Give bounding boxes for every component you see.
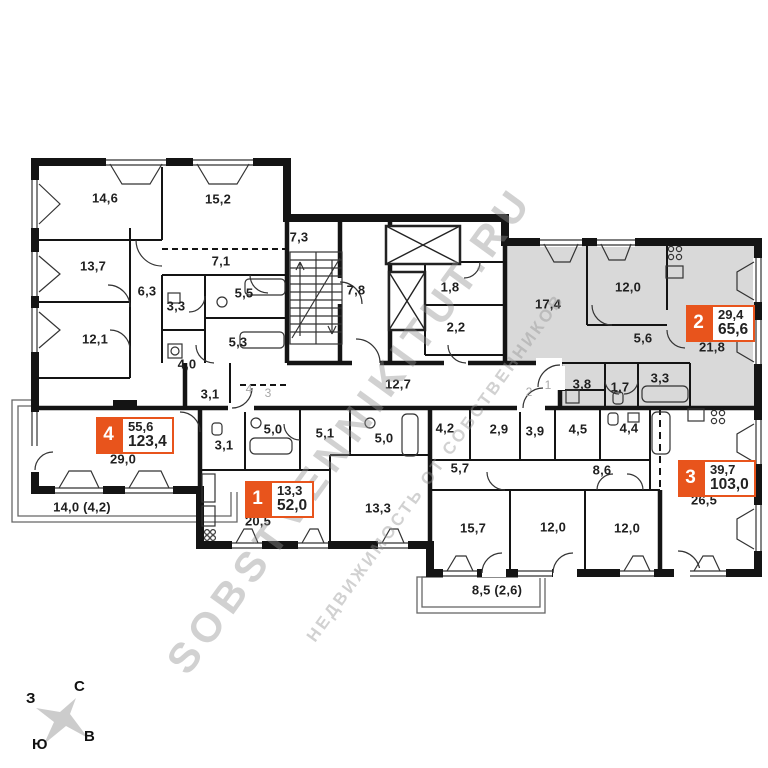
apartment-3-living-area: 39,7 xyxy=(710,463,749,477)
apartment-2-total-area: 65,6 xyxy=(718,322,748,339)
apartment-4-number: 4 xyxy=(96,417,121,454)
room-area-label: 2,2 xyxy=(447,320,466,335)
apartment-3-badge[interactable]: 3 39,7 103,0 xyxy=(678,460,756,497)
room-area-label: 12,7 xyxy=(385,377,411,392)
room-area-label: 13,7 xyxy=(80,259,106,274)
room-area-label: 12,0 xyxy=(614,521,640,536)
apartment-3-total-area: 103,0 xyxy=(710,477,749,494)
apartment-2-living-area: 29,4 xyxy=(718,308,748,322)
room-area-label: 13,3 xyxy=(365,501,391,516)
room-area-label: 4,2 xyxy=(436,421,455,436)
room-area-label: 7,1 xyxy=(212,254,231,269)
apartment-4-total-area: 123,4 xyxy=(128,434,167,451)
room-area-label: 15,2 xyxy=(205,192,231,207)
apartment-2-badge[interactable]: 2 29,4 65,6 xyxy=(686,305,755,342)
room-area-label: 3,3 xyxy=(167,299,186,314)
room-area-label: 12,0 xyxy=(615,280,641,295)
room-area-label: 17,4 xyxy=(535,297,561,312)
room-area-label: 12,0 xyxy=(540,520,566,535)
compass-west-label: З xyxy=(26,690,35,707)
room-area-label: 15,7 xyxy=(460,521,486,536)
room-area-label: 3,3 xyxy=(651,371,670,386)
room-area-label: 5,7 xyxy=(451,461,470,476)
apartment-door-number: 3 xyxy=(265,386,272,400)
room-area-label: 3,1 xyxy=(201,387,220,402)
room-area-label: 14,6 xyxy=(92,191,118,206)
room-area-label: 3,8 xyxy=(573,377,592,392)
room-area-label: 1,8 xyxy=(441,280,460,295)
apartment-door-number: 1 xyxy=(545,378,552,392)
compass-east-label: В xyxy=(84,728,95,745)
room-area-label: 7,8 xyxy=(347,283,366,298)
room-area-label: 3,1 xyxy=(215,438,234,453)
room-labels-layer: 14,615,213,77,16,33,35,512,15,34,03,129,… xyxy=(0,0,768,768)
room-area-label: 8,6 xyxy=(593,463,612,478)
compass-rose: С З Ю В xyxy=(14,676,114,764)
room-area-label: 5,1 xyxy=(316,426,335,441)
room-area-label: 5,0 xyxy=(375,431,394,446)
apartment-door-number: 2 xyxy=(526,385,533,399)
room-area-label: 4,4 xyxy=(620,421,639,436)
apartment-door-number: 4 xyxy=(246,382,253,396)
room-area-label: 2,9 xyxy=(490,422,509,437)
apartment-1-badge[interactable]: 1 13,3 52,0 xyxy=(245,481,314,518)
room-area-label: 4,5 xyxy=(569,422,588,437)
balcony-area-label: 14,0 (4,2) xyxy=(53,500,111,515)
room-area-label: 5,0 xyxy=(264,422,283,437)
room-area-label: 5,3 xyxy=(229,335,248,350)
apartment-3-number: 3 xyxy=(678,460,703,497)
balcony-area-label: 8,5 (2,6) xyxy=(472,583,522,598)
floor-plan-page: SOBSTVENNIKITUT.RU НЕДВИЖИМОСТЬ ОТ СОБСТ… xyxy=(0,0,768,768)
room-area-label: 4,0 xyxy=(178,357,197,372)
room-area-label: 12,1 xyxy=(82,332,108,347)
apartment-2-number: 2 xyxy=(686,305,711,342)
compass-north-label: С xyxy=(74,678,85,695)
room-area-label: 3,9 xyxy=(526,424,545,439)
apartment-1-total-area: 52,0 xyxy=(277,498,307,515)
room-area-label: 5,6 xyxy=(634,331,653,346)
apartment-4-badge[interactable]: 4 55,6 123,4 xyxy=(96,417,174,454)
room-area-label: 1,7 xyxy=(611,380,630,395)
apartment-4-living-area: 55,6 xyxy=(128,420,167,434)
room-area-label: 7,3 xyxy=(290,230,309,245)
apartment-1-number: 1 xyxy=(245,481,270,518)
compass-south-label: Ю xyxy=(32,736,47,753)
room-area-label: 5,5 xyxy=(235,286,254,301)
apartment-1-living-area: 13,3 xyxy=(277,484,307,498)
room-area-label: 6,3 xyxy=(138,284,157,299)
